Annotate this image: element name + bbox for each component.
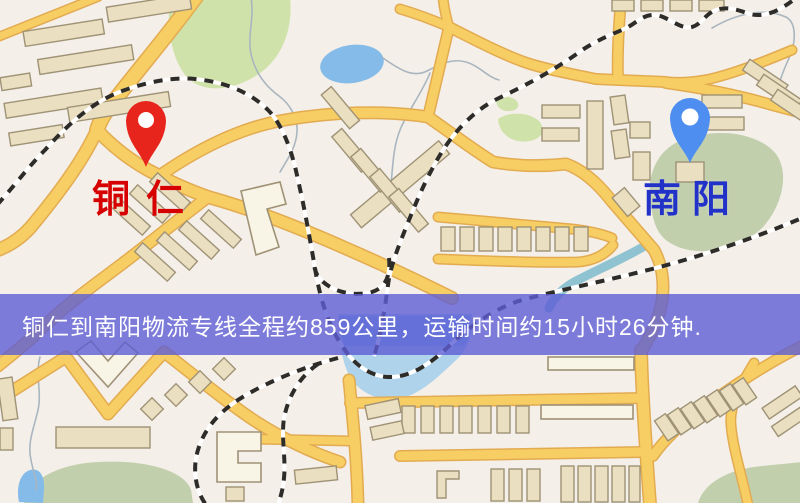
map-viewport[interactable] [0,0,800,503]
route-info-text: 铜仁到南阳物流专线全程约859公里，运输时间约15小时26分钟. [22,308,702,342]
route-info-banner: 铜仁到南阳物流专线全程约859公里，运输时间约15小时26分钟. [0,294,800,355]
building-blocks [0,0,800,502]
map-canvas[interactable] [0,0,800,503]
